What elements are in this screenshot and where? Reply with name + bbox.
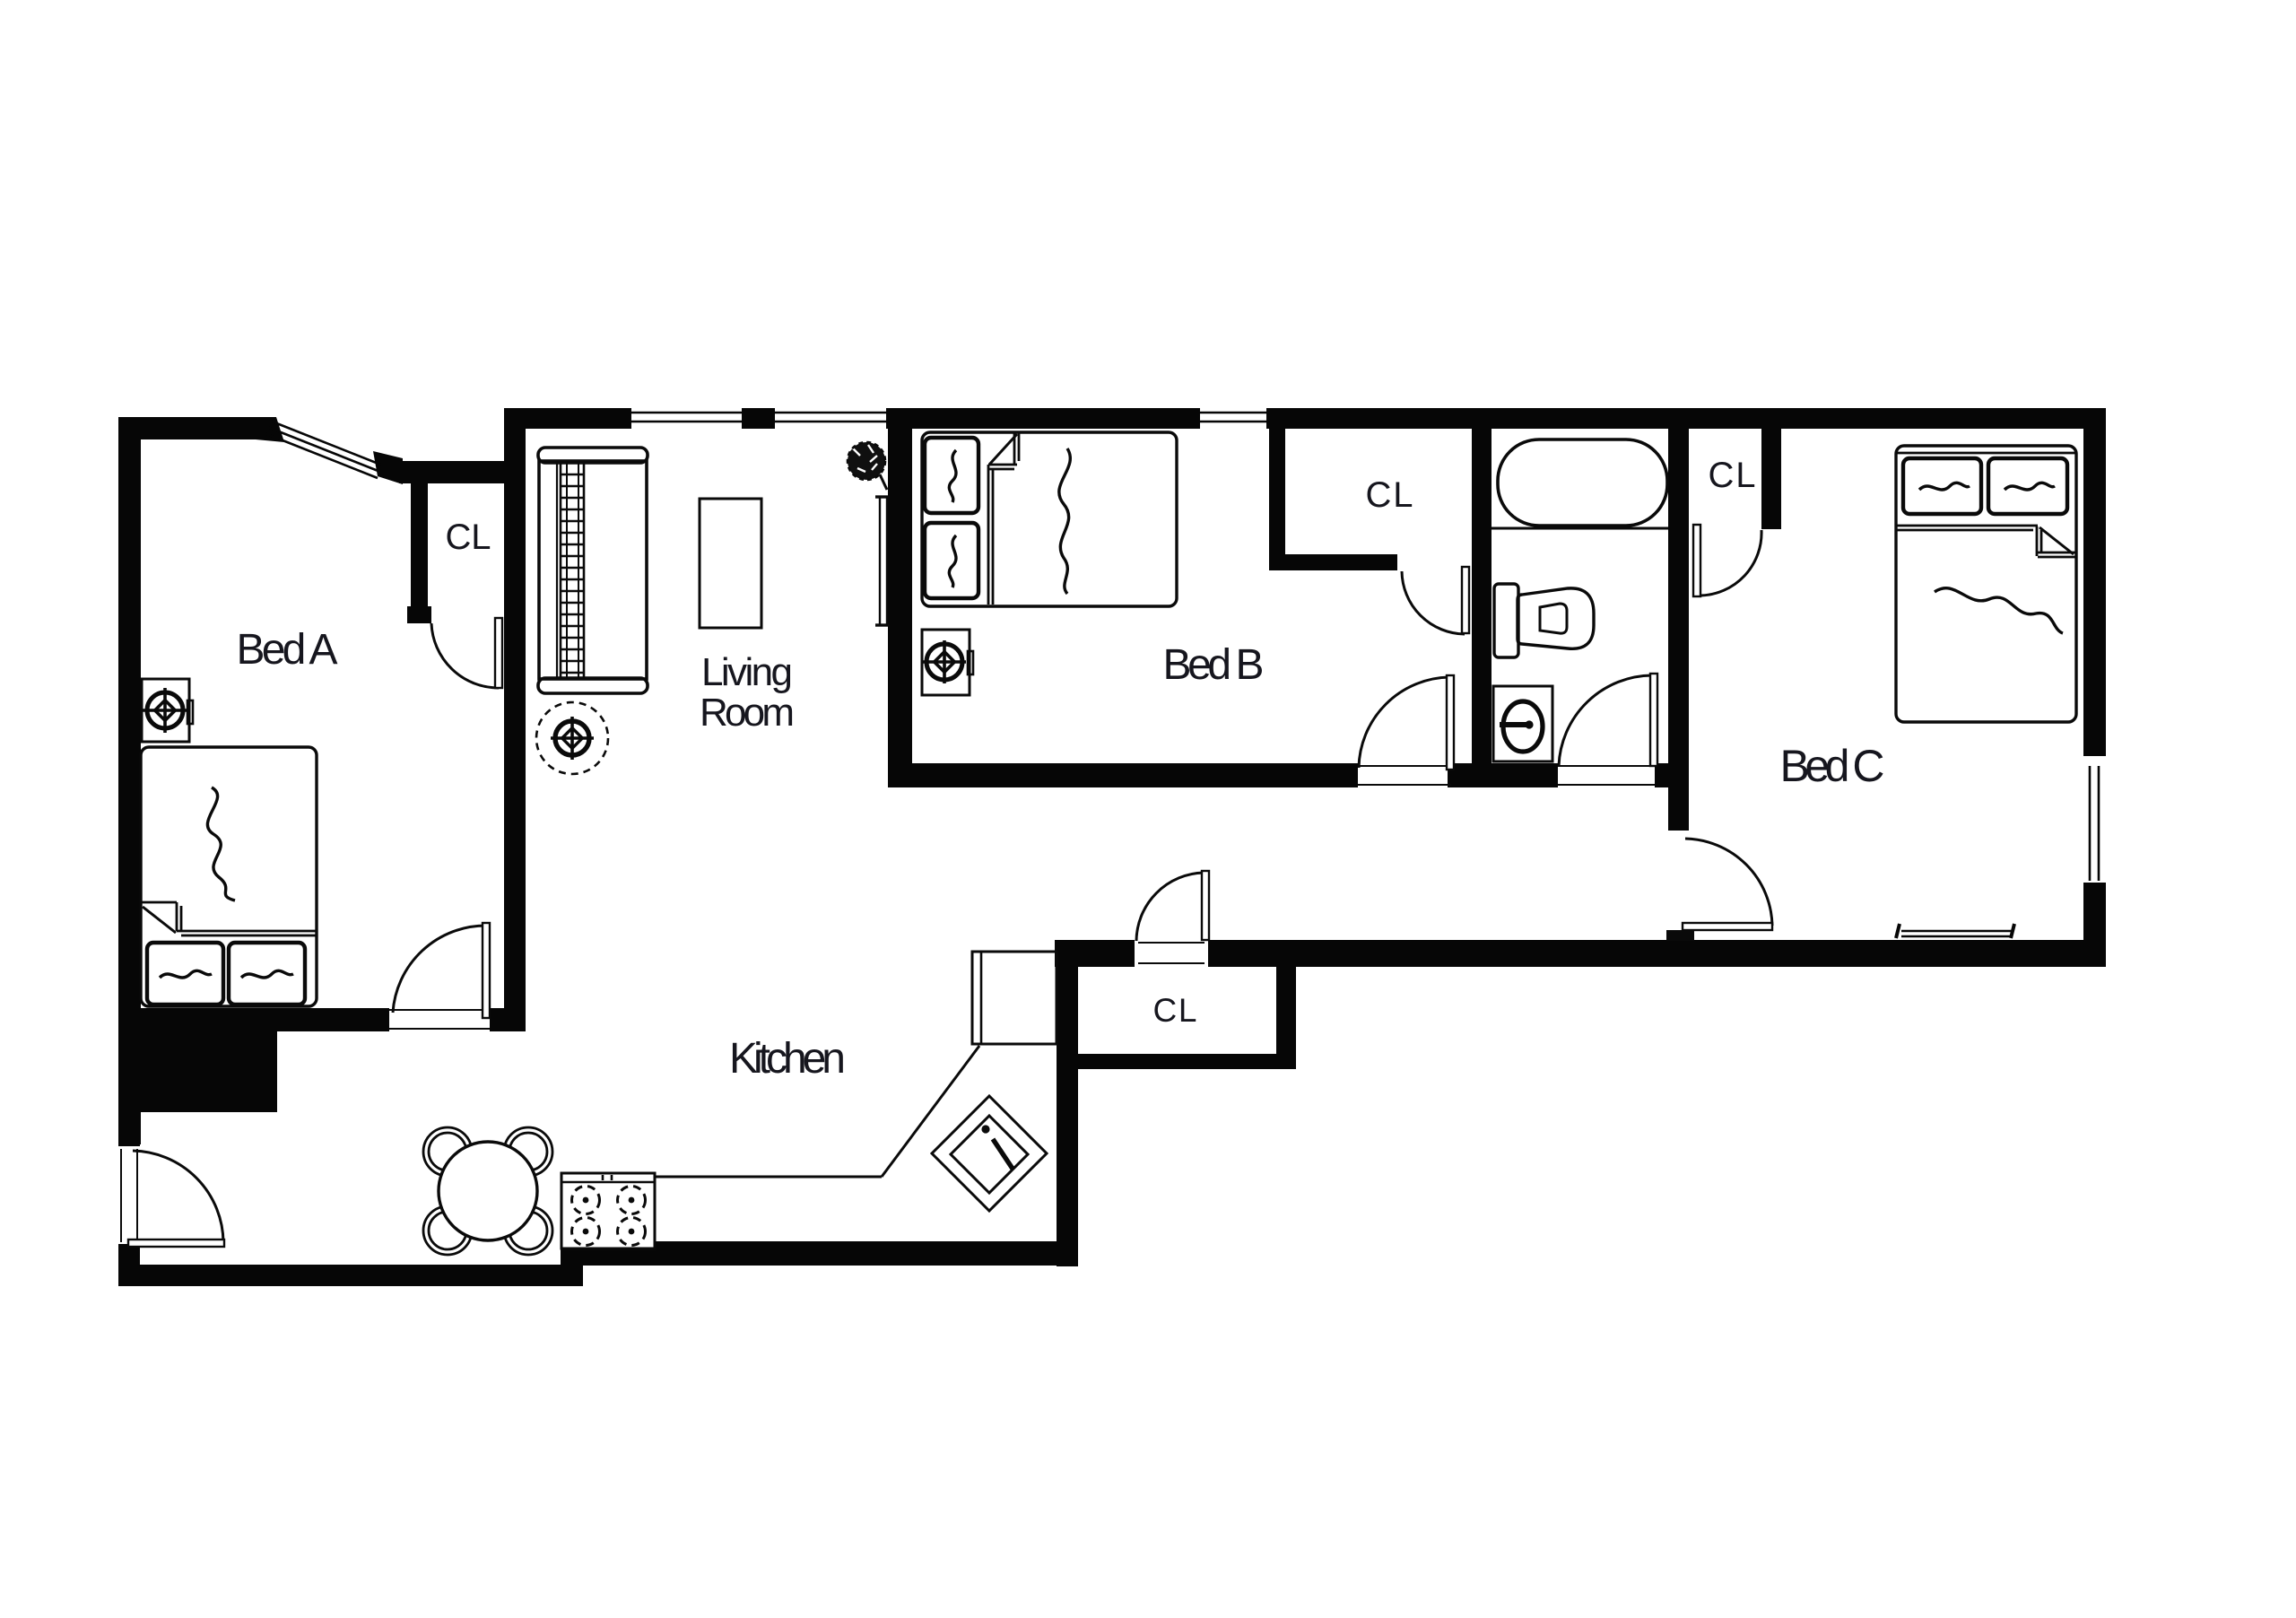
svg-text:Bed A: Bed A — [237, 626, 338, 674]
svg-text:CL: CL — [446, 518, 491, 557]
svg-text:Kitchen: Kitchen — [729, 1035, 846, 1083]
svg-text:CL: CL — [1153, 992, 1197, 1029]
svg-text:Living: Living — [701, 650, 793, 694]
svg-text:Room: Room — [700, 691, 795, 735]
svg-text:CL: CL — [1366, 475, 1413, 515]
svg-text:CL: CL — [1709, 456, 1756, 495]
svg-text:Bed B: Bed B — [1163, 641, 1265, 689]
svg-text:Bed C: Bed C — [1780, 741, 1885, 791]
